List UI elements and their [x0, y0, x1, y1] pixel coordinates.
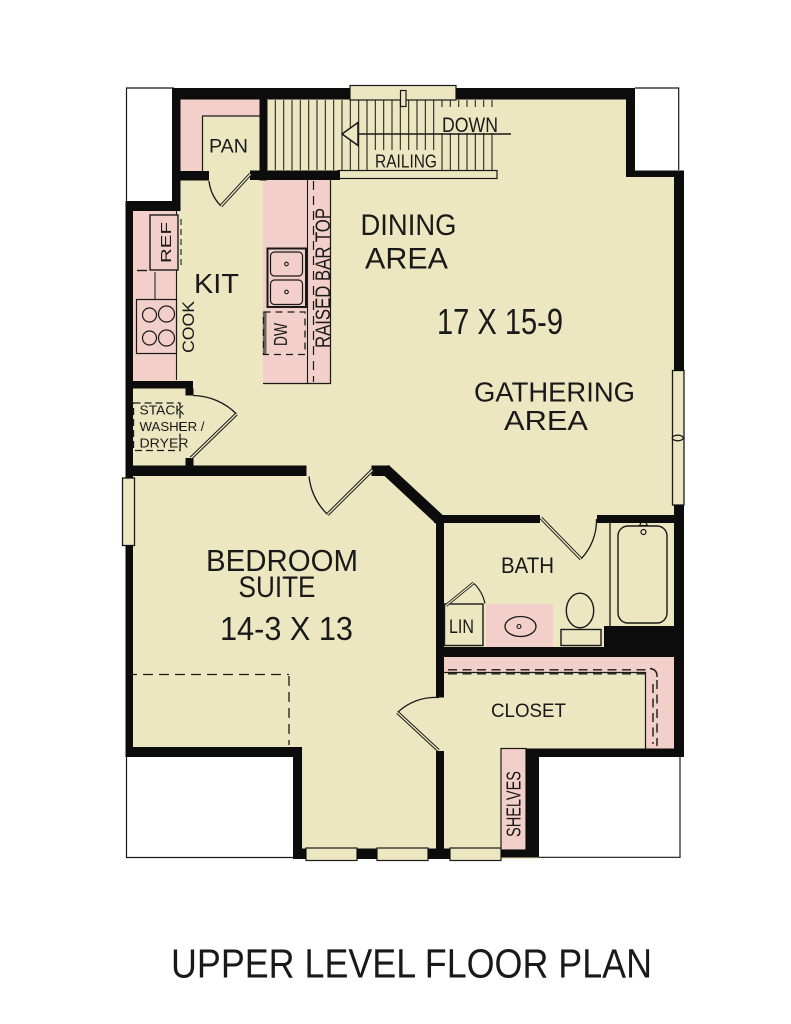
- svg-text:GATHERING: GATHERING: [474, 377, 635, 408]
- svg-text:DOWN: DOWN: [442, 114, 498, 137]
- svg-text:PAN: PAN: [209, 137, 248, 158]
- svg-text:BATH: BATH: [501, 553, 554, 578]
- svg-text:COOK: COOK: [180, 301, 198, 353]
- svg-text:DW: DW: [271, 323, 291, 346]
- svg-text:SUITE: SUITE: [239, 571, 316, 604]
- svg-text:AREA: AREA: [504, 405, 588, 436]
- svg-text:REF: REF: [158, 222, 175, 263]
- svg-text:14-3 X 13: 14-3 X 13: [220, 610, 353, 647]
- svg-text:LIN: LIN: [449, 617, 474, 638]
- svg-text:RAILING: RAILING: [375, 152, 437, 172]
- svg-text:KIT: KIT: [194, 268, 239, 299]
- svg-text:SHELVES: SHELVES: [504, 771, 526, 837]
- svg-text:STACK: STACK: [140, 404, 186, 418]
- svg-text:AREA: AREA: [365, 243, 448, 276]
- svg-text:17 X 15-9: 17 X 15-9: [437, 301, 563, 342]
- svg-text:WASHER /: WASHER /: [140, 420, 206, 434]
- svg-text:DRYER: DRYER: [140, 437, 189, 451]
- svg-text:DINING: DINING: [361, 209, 457, 242]
- svg-text:UPPER LEVEL FLOOR PLAN: UPPER LEVEL FLOOR PLAN: [171, 941, 652, 987]
- svg-text:RAISED BAR TOP: RAISED BAR TOP: [312, 208, 335, 348]
- svg-text:CLOSET: CLOSET: [491, 700, 566, 722]
